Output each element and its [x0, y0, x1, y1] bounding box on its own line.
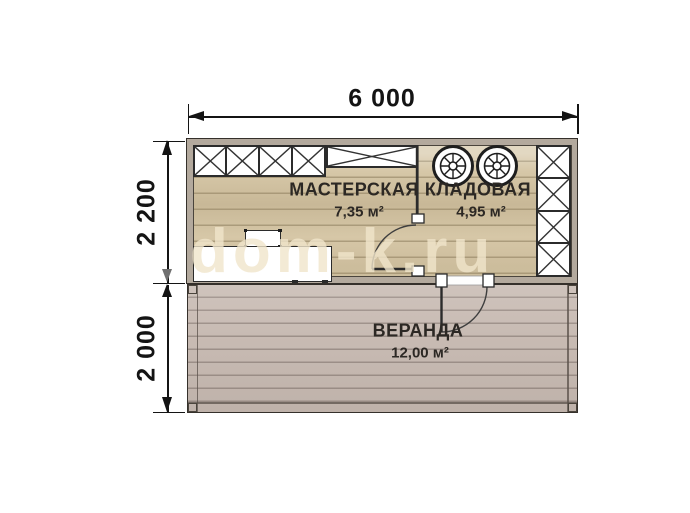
- window-x-icon: [260, 147, 293, 175]
- window-x-icon: [227, 147, 260, 175]
- window-x-icon: [293, 147, 324, 175]
- shelving-strip: [536, 145, 571, 277]
- arrowhead-left-icon: [189, 111, 204, 121]
- dimension-total-width-label: 6 000: [348, 85, 416, 114]
- veranda-frame-left: [197, 285, 198, 412]
- arrowhead-down-icon: [162, 397, 172, 412]
- veranda-post: [568, 285, 577, 294]
- workbench: [193, 246, 332, 282]
- room-label-veranda: ВЕРАНДА: [373, 321, 464, 342]
- wide-window-icon: [326, 145, 418, 168]
- room-label-workshop: МАСТЕРСКАЯ: [289, 180, 419, 201]
- window-row: [193, 145, 326, 177]
- veranda-post: [188, 285, 197, 294]
- shelf-x-icon: [538, 147, 569, 180]
- shelf-x-icon: [538, 179, 569, 212]
- arrowhead-up-middle-icon: [162, 284, 172, 297]
- dimension-lower-height-label: 2 000: [133, 314, 162, 382]
- room-area-veranda: 12,00 м²: [391, 345, 449, 362]
- veranda-frame-right: [567, 285, 568, 412]
- room-area-workshop: 7,35 м²: [334, 204, 383, 221]
- dimension-line-top: [188, 116, 578, 118]
- dimension-line-upper: [167, 141, 169, 283]
- room-area-storage: 4,95 м²: [456, 204, 505, 221]
- stool: [245, 230, 281, 248]
- window-x-icon: [195, 147, 228, 175]
- veranda-post: [188, 403, 197, 412]
- floor-plan-canvas: 6 000 2 200 2 000: [0, 0, 690, 513]
- veranda-deck: [187, 284, 578, 413]
- arrowhead-up-icon: [162, 140, 172, 155]
- shelf-x-icon: [538, 244, 569, 275]
- dimension-tick-top-right: [577, 104, 579, 134]
- veranda-frame-bottom: [188, 402, 577, 403]
- shelf-x-icon: [538, 212, 569, 245]
- dimension-line-lower: [167, 285, 169, 412]
- arrowhead-down-gray-icon: [162, 269, 172, 282]
- veranda-post: [568, 403, 577, 412]
- dimension-upper-height-label: 2 200: [133, 178, 162, 246]
- arrowhead-right-icon: [562, 111, 577, 121]
- room-label-storage: КЛАДОВАЯ: [425, 180, 531, 201]
